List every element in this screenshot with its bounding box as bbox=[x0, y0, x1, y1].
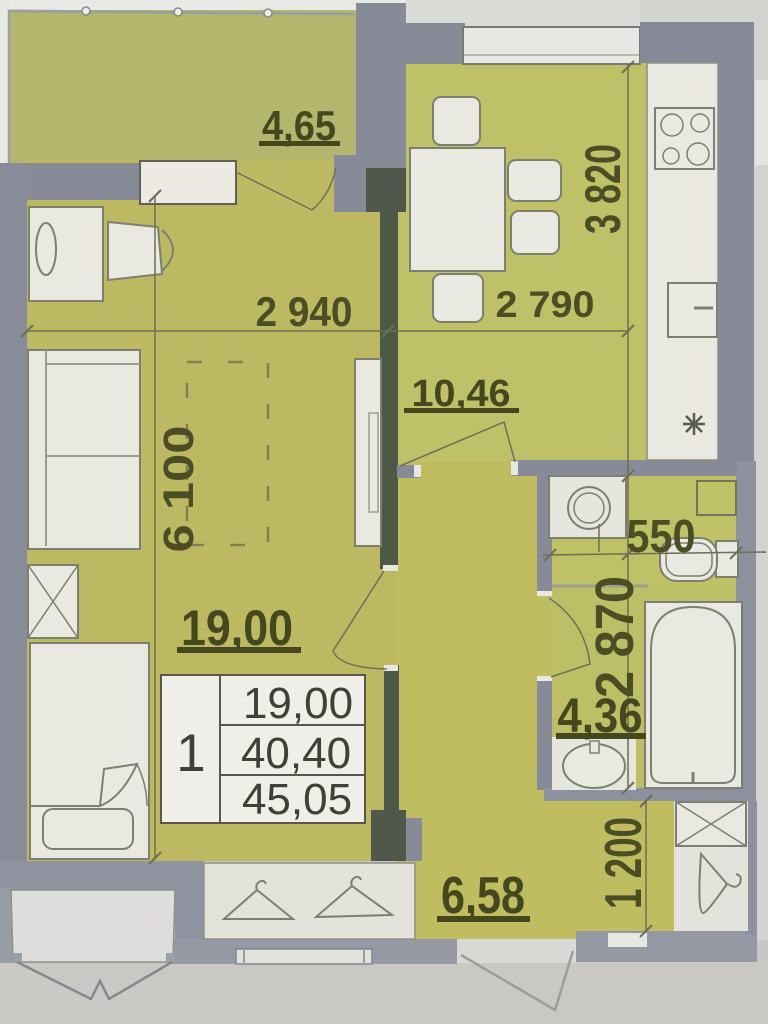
svg-text:1 200: 1 200 bbox=[595, 817, 653, 909]
svg-text:550: 550 bbox=[627, 510, 696, 562]
svg-text:2 870: 2 870 bbox=[585, 576, 645, 698]
svg-text:2 940: 2 940 bbox=[256, 288, 353, 335]
svg-text:6 100: 6 100 bbox=[155, 426, 203, 553]
svg-text:45,05: 45,05 bbox=[242, 775, 352, 824]
svg-text:3 820: 3 820 bbox=[575, 144, 631, 234]
svg-text:1: 1 bbox=[176, 724, 205, 783]
svg-text:2 790: 2 790 bbox=[496, 284, 595, 325]
svg-text:40,40: 40,40 bbox=[241, 729, 351, 778]
svg-text:19,00: 19,00 bbox=[243, 679, 353, 728]
